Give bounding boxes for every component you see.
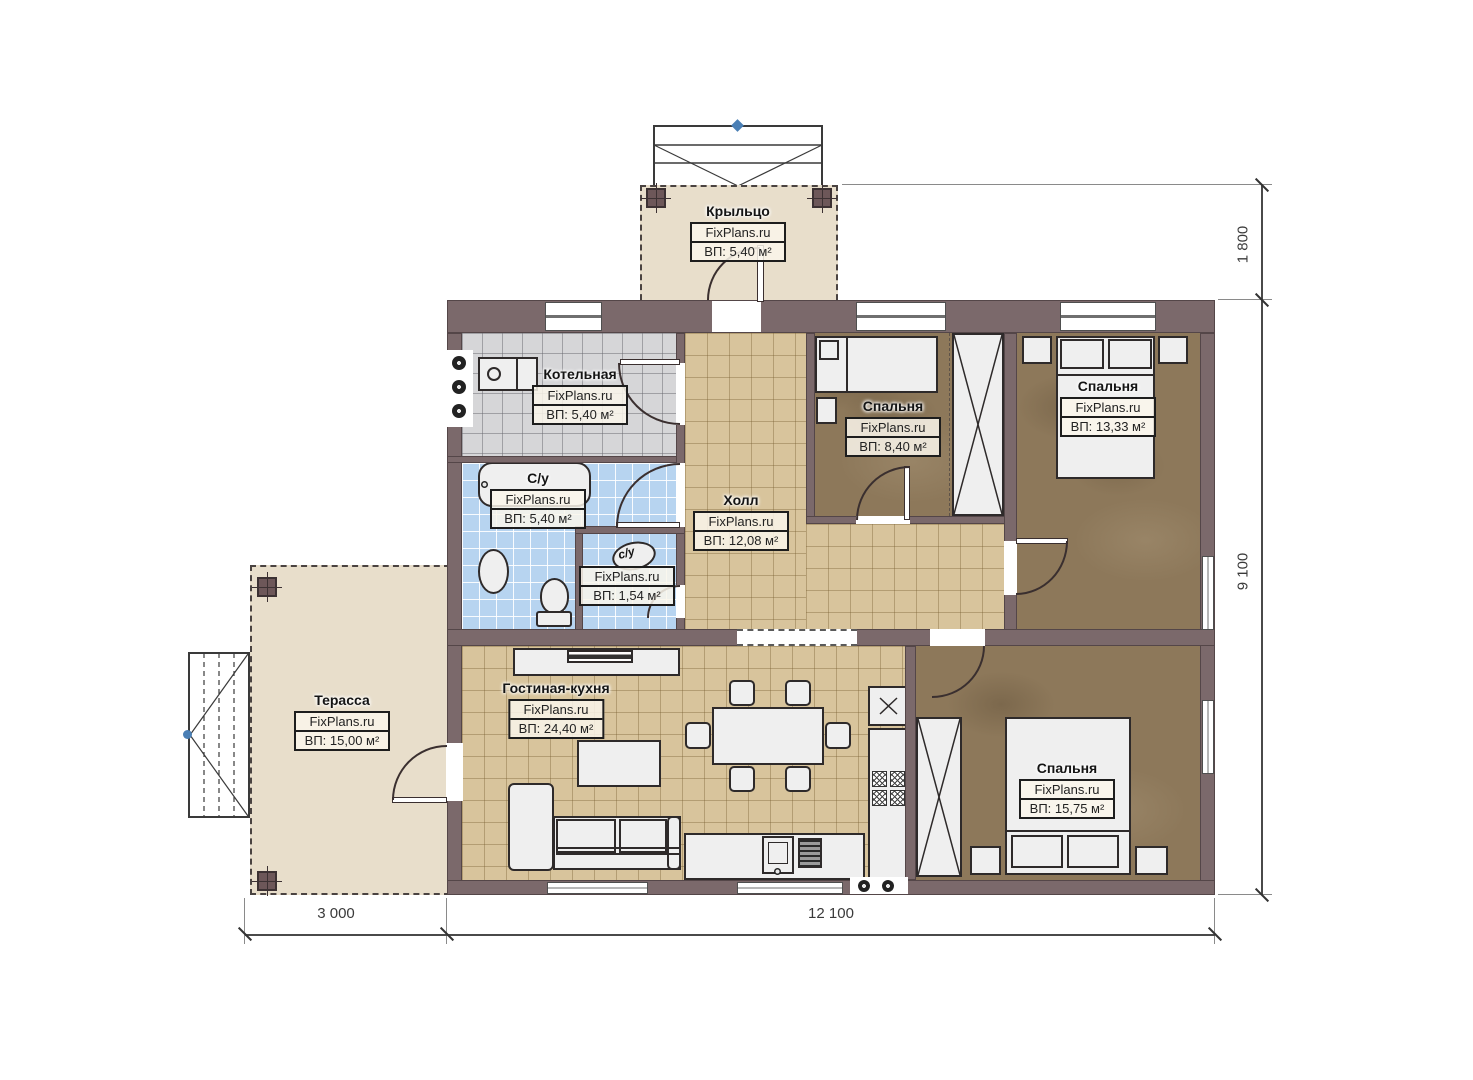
wardrobe-bottom xyxy=(916,717,962,877)
extension-line xyxy=(446,898,447,944)
room-label-bedroom-bottom: Спальня FixPlans.ru ВП: 15,75 м² xyxy=(1019,760,1115,819)
room-name: Терасса xyxy=(314,692,370,708)
fridge-x-icon xyxy=(870,688,907,724)
bathroom-sink xyxy=(478,549,509,594)
chair-bottom-2 xyxy=(785,766,811,792)
chair-top-1 xyxy=(729,680,755,706)
room-area: ВП: 5,40 м² xyxy=(492,510,584,527)
dimension-terrace-width: 3 000 xyxy=(296,905,376,922)
bed-bottom-pillow-right xyxy=(1067,835,1119,868)
corridor-floor xyxy=(806,524,1004,629)
room-info-box: FixPlans.ru ВП: 1,54 м² xyxy=(579,566,675,606)
tv xyxy=(567,650,633,663)
bed-bottom-blanket-line xyxy=(1005,830,1131,832)
room-area: ВП: 13,33 м² xyxy=(1062,418,1154,435)
door-gap-porch xyxy=(712,301,761,332)
sofa-chaise xyxy=(508,783,554,871)
door-gap-terrace xyxy=(446,743,463,801)
room-area: ВП: 12,08 м² xyxy=(695,532,787,549)
window-bedroom-top-right xyxy=(1202,556,1214,630)
dimension-line-bottom xyxy=(245,934,1215,936)
wall-boiler-bath xyxy=(447,456,685,463)
room-label-terrace: Терасса FixPlans.ru ВП: 15,00 м² xyxy=(294,692,390,751)
room-label-boiler: Котельная FixPlans.ru ВП: 5,40 м² xyxy=(532,366,628,425)
room-area: ВП: 15,00 м² xyxy=(296,732,388,749)
chair-right xyxy=(825,722,851,749)
dining-table xyxy=(712,707,824,765)
nightstand-top-right xyxy=(1158,336,1188,364)
room-area: ВП: 5,40 м² xyxy=(692,243,784,260)
wardrobe-x-icon xyxy=(918,719,960,875)
stove-burner-3 xyxy=(872,790,887,806)
room-label-bedroom-small: Спальня FixPlans.ru ВП: 8,40 м² xyxy=(845,398,941,457)
steps-marker-2 xyxy=(183,730,192,739)
floor-plan: Крыльцо FixPlans.ru ВП: 5,40 м² Котельна… xyxy=(0,0,1473,1080)
room-info-box: FixPlans.ru ВП: 5,40 м² xyxy=(690,222,786,262)
watermark: FixPlans.ru xyxy=(492,491,584,510)
window-bedroom-small xyxy=(856,302,946,331)
stove-burner-2 xyxy=(890,771,905,787)
watermark: FixPlans.ru xyxy=(847,419,939,438)
wardrobe-x-icon xyxy=(954,335,1002,514)
room-area: ВП: 5,40 м² xyxy=(534,406,626,423)
room-info-box: FixPlans.ru ВП: 15,75 м² xyxy=(1019,779,1115,819)
watermark: FixPlans.ru xyxy=(1062,399,1154,418)
room-info-box: FixPlans.ru ВП: 13,33 м² xyxy=(1060,397,1156,437)
stove-burner-4 xyxy=(890,790,905,806)
porch-column-right xyxy=(812,188,832,208)
window-living xyxy=(547,882,648,894)
room-label-living-kitchen: Гостиная-кухня FixPlans.ru ВП: 24,40 м² xyxy=(502,680,609,739)
gas-meter-1 xyxy=(452,356,466,370)
room-info-box: FixPlans.ru ВП: 15,00 м² xyxy=(294,711,390,751)
room-name: Спальня xyxy=(863,398,923,414)
watermark: FixPlans.ru xyxy=(581,568,673,587)
kitchen-faucet xyxy=(774,868,781,875)
room-name: Спальня xyxy=(1037,760,1097,776)
porch-column-left xyxy=(646,188,666,208)
room-info-box: FixPlans.ru ВП: 12,08 м² xyxy=(693,511,789,551)
wall-bedroom-top-left xyxy=(1004,333,1017,645)
wall-stove-burner-2 xyxy=(882,880,894,892)
kitchen-sink-basin xyxy=(768,842,788,864)
toilet-tank xyxy=(536,611,572,627)
wardrobe-small xyxy=(952,333,1004,516)
room-area: ВП: 1,54 м² xyxy=(581,587,673,604)
wall-hall-bedroom-small xyxy=(806,333,815,524)
window-bedroom-bottom-right xyxy=(1202,700,1214,774)
dimension-porch-depth: 1 800 xyxy=(1235,208,1252,282)
nightstand-small xyxy=(816,397,837,424)
room-label-wc: FixPlans.ru ВП: 1,54 м² xyxy=(579,566,675,606)
toilet-bowl xyxy=(540,578,569,614)
chair-left xyxy=(685,722,711,749)
room-info-box: FixPlans.ru ВП: 8,40 м² xyxy=(845,417,941,457)
room-area: ВП: 15,75 м² xyxy=(1021,800,1113,817)
gas-meter-2 xyxy=(452,380,466,394)
stove-burner-1 xyxy=(872,771,887,787)
chair-top-2 xyxy=(785,680,811,706)
dimension-line-right xyxy=(1261,185,1263,895)
bed-top-blanket-line xyxy=(1056,374,1155,376)
room-label-bathroom: С/у FixPlans.ru ВП: 5,40 м² xyxy=(490,470,586,529)
bed-small-pillow xyxy=(819,340,839,360)
window-bedroom-top xyxy=(1060,302,1156,331)
watermark: FixPlans.ru xyxy=(695,513,787,532)
bathtub-tap xyxy=(481,481,488,488)
gas-meter-3 xyxy=(452,404,466,418)
window-boiler xyxy=(545,302,602,331)
bed-bottom-pillow-left xyxy=(1011,835,1063,868)
terrace-column-top xyxy=(257,577,277,597)
boiler-sink xyxy=(487,367,501,381)
room-name: Крыльцо xyxy=(706,203,770,219)
porch-steps xyxy=(653,125,823,187)
chair-bottom-1 xyxy=(729,766,755,792)
watermark: FixPlans.ru xyxy=(1021,781,1113,800)
room-name: Гостиная-кухня xyxy=(502,680,609,696)
nightstand-bottom-left xyxy=(970,846,1001,875)
window-kitchen xyxy=(737,882,843,894)
hall-floor xyxy=(685,333,806,629)
watermark: FixPlans.ru xyxy=(296,713,388,732)
wall-living-bedroom-bottom xyxy=(905,646,916,880)
fridge xyxy=(868,686,909,726)
wall-stove-burner-1 xyxy=(858,880,870,892)
dimension-house-depth: 9 100 xyxy=(1235,535,1252,609)
terrace-steps xyxy=(188,652,250,818)
wardrobe-small-door-dash xyxy=(949,333,950,516)
kitchen-drainer xyxy=(798,838,822,868)
room-area: ВП: 8,40 м² xyxy=(847,438,939,455)
sofa-back-line-2 xyxy=(556,853,680,855)
nightstand-bottom-right xyxy=(1135,846,1168,875)
bed-small-blanket-line xyxy=(846,336,848,393)
room-label-hall: Холл FixPlans.ru ВП: 12,08 м² xyxy=(693,492,789,551)
nightstand-top-left xyxy=(1022,336,1052,364)
room-name: Котельная xyxy=(543,366,616,382)
dimension-house-width: 12 100 xyxy=(789,905,873,922)
sofa-back-line-1 xyxy=(556,847,680,849)
watermark: FixPlans.ru xyxy=(510,701,602,720)
room-info-box: FixPlans.ru ВП: 5,40 м² xyxy=(532,385,628,425)
sofa-armrest xyxy=(667,816,681,870)
room-label-porch: Крыльцо FixPlans.ru ВП: 5,40 м² xyxy=(690,203,786,262)
bed-top-pillow-right xyxy=(1108,339,1152,369)
extension-line xyxy=(842,184,1272,185)
door-gap-bedroom-bottom xyxy=(930,629,985,646)
room-info-box: FixPlans.ru ВП: 5,40 м² xyxy=(490,489,586,529)
extension-line xyxy=(1214,898,1215,944)
watermark: FixPlans.ru xyxy=(534,387,626,406)
room-name: Холл xyxy=(723,492,758,508)
extension-line xyxy=(244,898,245,944)
boiler-counter-divider xyxy=(516,357,518,391)
room-name: Спальня xyxy=(1078,378,1138,394)
room-label-bedroom-top: Спальня FixPlans.ru ВП: 13,33 м² xyxy=(1060,378,1156,437)
room-area: ВП: 24,40 м² xyxy=(510,720,602,737)
opening-hall-living xyxy=(737,629,857,646)
sideboard xyxy=(577,740,661,787)
bed-top-pillow-left xyxy=(1060,339,1104,369)
watermark: FixPlans.ru xyxy=(692,224,784,243)
terrace-column-bottom xyxy=(257,871,277,891)
room-name: С/у xyxy=(527,470,549,486)
room-info-box: FixPlans.ru ВП: 24,40 м² xyxy=(508,699,604,739)
